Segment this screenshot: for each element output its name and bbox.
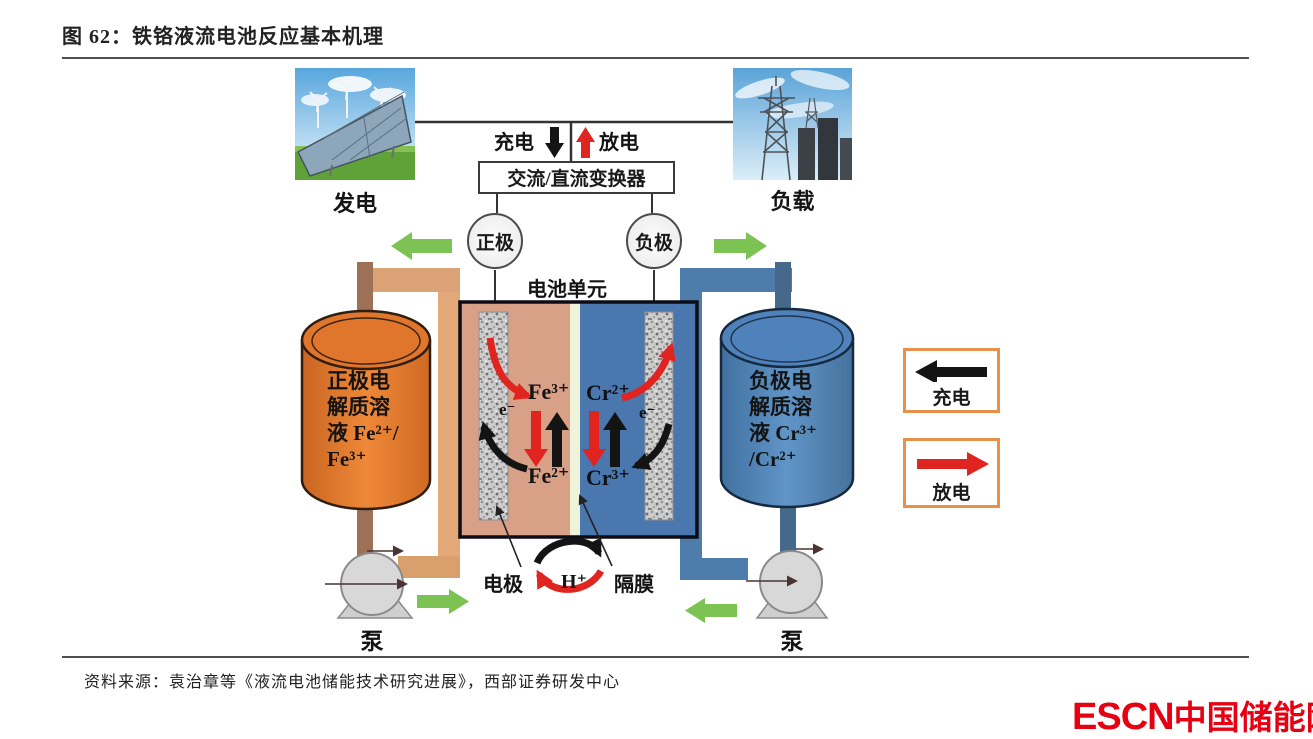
power-tower-image — [733, 66, 852, 180]
legend-discharge-box: 放电 — [903, 438, 1000, 508]
electron-left-label: e⁻ — [499, 400, 516, 420]
electrode-label: 电极 — [483, 568, 523, 597]
flow-arrow-bottom-left-icon — [417, 589, 469, 614]
solar-wind-image — [295, 68, 415, 180]
fe2-ion-label: Fe²⁺ — [528, 463, 569, 489]
escn-logo-suffix: 中国储能网 — [1174, 699, 1313, 736]
positive-terminal-label: 正极 — [476, 228, 514, 255]
discharge-label-top: 放电 — [599, 126, 639, 155]
electron-right-label: e⁻ — [639, 403, 656, 423]
positive-tank-text: 正极电 解质溶 液 Fe²⁺/ Fe³⁺ — [327, 368, 399, 472]
right-pump-icon — [746, 549, 827, 618]
negative-tank-text: 负极电 解质溶 液 Cr³⁺ /Cr²⁺ — [749, 368, 817, 472]
negative-tank-line-1: 负极电 — [749, 368, 817, 394]
charge-label-top: 充电 — [494, 126, 534, 155]
left-pump-label: 泵 — [344, 622, 400, 656]
legend-charge-box: 充电 — [903, 348, 1000, 413]
positive-tank-line-2: 解质溶 — [327, 394, 399, 420]
legend-discharge-arrow-icon — [913, 451, 991, 477]
converter-label: 交流/直流变换器 — [507, 164, 645, 191]
proton-label: H⁺ — [561, 569, 587, 594]
positive-terminal-circle: 正极 — [467, 213, 523, 269]
figure-title: 图 62：铁铬液流电池反应基本机理 — [62, 20, 384, 49]
positive-tank-line-3: 液 Fe²⁺/ — [327, 420, 399, 446]
grid-connection-wire — [415, 122, 733, 161]
proton-charge-arc-icon — [537, 541, 599, 563]
cr3-ion-label: Cr³⁺ — [586, 465, 630, 491]
legend-discharge-label: 放电 — [932, 478, 970, 505]
figure-page: 图 62：铁铬液流电池反应基本机理 — [0, 0, 1313, 739]
battery-cell-box — [460, 302, 697, 537]
flow-battery-diagram — [0, 0, 1313, 739]
negative-tank-line-2: 解质溶 — [749, 394, 817, 420]
source-note: 资料来源：袁治章等《液流电池储能技术研究进展》，西部证券研发中心 — [84, 668, 620, 692]
cell-title: 电池单元 — [527, 273, 607, 302]
escn-logo-text: ESCN — [1072, 696, 1174, 738]
negative-tank-line-4: /Cr²⁺ — [749, 446, 817, 472]
membrane-label: 隔膜 — [614, 568, 654, 597]
charge-down-arrow-icon — [545, 127, 564, 158]
cr2-ion-label: Cr²⁺ — [586, 380, 630, 406]
generation-label: 发电 — [295, 186, 415, 218]
positive-tank-line-1: 正极电 — [327, 368, 399, 394]
fe3-ion-label: Fe³⁺ — [528, 379, 569, 405]
flow-arrow-bottom-right-icon — [685, 598, 737, 623]
negative-tank-line-3: 液 Cr³⁺ — [749, 420, 817, 446]
positive-tank-line-4: Fe³⁺ — [327, 446, 399, 472]
flow-arrow-top-left-icon — [391, 232, 452, 260]
escn-logo: ESCN中国储能网 — [1072, 691, 1313, 739]
legend-charge-label: 充电 — [932, 383, 970, 410]
load-label: 负载 — [733, 184, 852, 216]
right-pump-label: 泵 — [764, 622, 820, 656]
legend-charge-arrow-icon — [913, 359, 991, 382]
discharge-up-arrow-icon — [576, 127, 595, 158]
ac-dc-converter-box: 交流/直流变换器 — [478, 161, 675, 194]
negative-terminal-circle: 负极 — [626, 213, 682, 269]
negative-terminal-label: 负极 — [635, 228, 673, 255]
membrane — [570, 302, 580, 537]
flow-arrow-top-right-icon — [714, 232, 767, 260]
